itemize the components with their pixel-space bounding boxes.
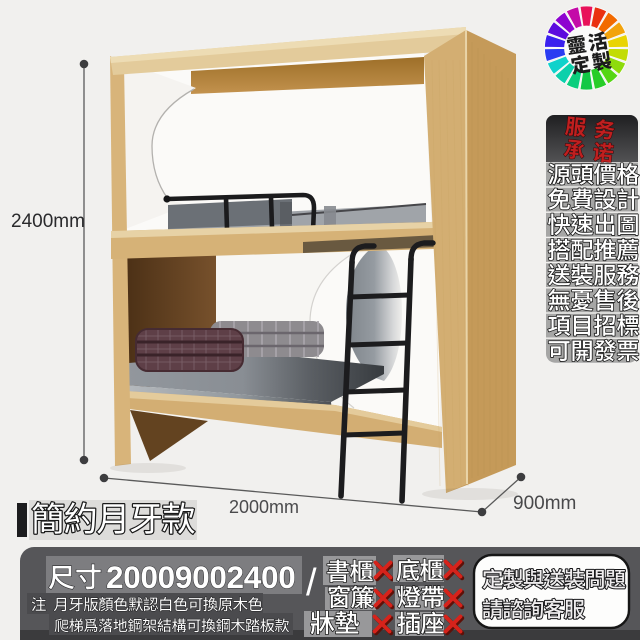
svg-text:2400mm: 2400mm [11, 211, 85, 232]
svg-text:900mm: 900mm [513, 493, 576, 514]
svg-text:2000mm: 2000mm [229, 497, 299, 517]
svg-text:20009002400: 20009002400 [106, 559, 295, 595]
svg-text:/: / [306, 562, 317, 604]
